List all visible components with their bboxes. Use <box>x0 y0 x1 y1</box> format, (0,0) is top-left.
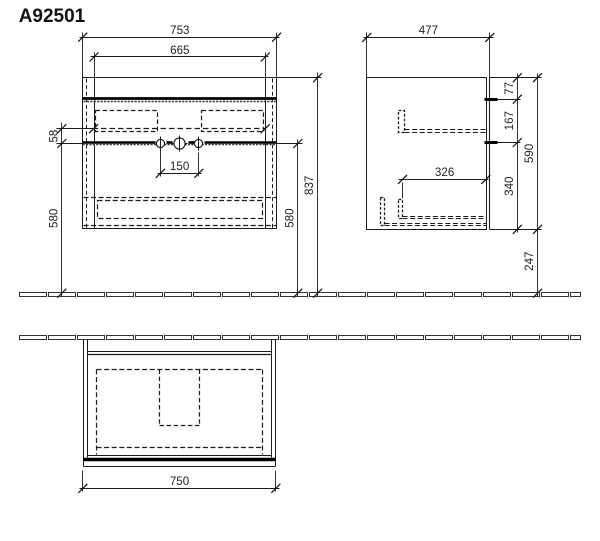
svg-text:58: 58 <box>47 130 60 143</box>
svg-text:167: 167 <box>503 111 516 130</box>
svg-text:837: 837 <box>303 176 316 195</box>
svg-text:150: 150 <box>170 160 189 173</box>
svg-text:247: 247 <box>523 252 536 271</box>
svg-text:340: 340 <box>503 177 516 196</box>
svg-text:590: 590 <box>523 144 536 163</box>
svg-text:580: 580 <box>283 208 296 227</box>
svg-text:665: 665 <box>170 44 189 57</box>
svg-text:A92501: A92501 <box>19 6 86 27</box>
svg-text:77: 77 <box>503 82 516 95</box>
svg-text:477: 477 <box>419 24 438 37</box>
svg-text:326: 326 <box>435 166 454 179</box>
svg-text:750: 750 <box>170 475 189 488</box>
svg-text:753: 753 <box>170 24 189 37</box>
svg-text:580: 580 <box>47 209 60 228</box>
